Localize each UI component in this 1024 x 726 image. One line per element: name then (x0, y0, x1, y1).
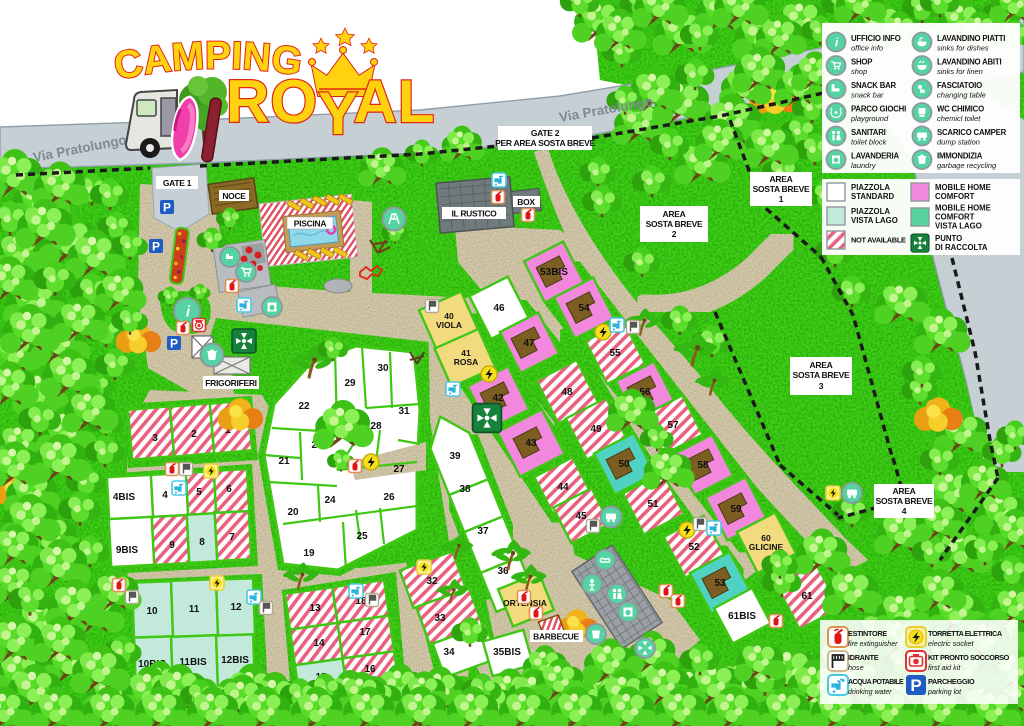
svg-text:59: 59 (730, 504, 742, 515)
svg-text:WC CHIMICO: WC CHIMICO (937, 105, 984, 114)
svg-text:30: 30 (377, 363, 389, 374)
svg-text:5: 5 (196, 487, 202, 498)
svg-text:47: 47 (523, 338, 535, 349)
svg-text:VISTA LAGO: VISTA LAGO (935, 222, 982, 231)
svg-text:parking lot: parking lot (927, 687, 962, 696)
svg-text:MOBILE HOME: MOBILE HOME (935, 183, 991, 192)
svg-text:54: 54 (578, 303, 590, 314)
svg-text:42: 42 (492, 393, 504, 404)
svg-text:4BIS: 4BIS (113, 492, 136, 503)
svg-text:COMFORT: COMFORT (935, 192, 975, 201)
svg-text:4: 4 (162, 490, 168, 501)
svg-text:2: 2 (672, 229, 677, 239)
svg-text:3: 3 (152, 433, 158, 444)
svg-text:GATE 2: GATE 2 (531, 128, 560, 138)
svg-text:SANITARI: SANITARI (851, 128, 886, 137)
svg-text:VIOLA: VIOLA (436, 320, 462, 330)
svg-text:fire extinguisher: fire extinguisher (848, 641, 898, 648)
svg-text:61: 61 (801, 591, 813, 602)
svg-text:SOSTA BREVE: SOSTA BREVE (793, 370, 850, 380)
svg-text:ESTINTORE: ESTINTORE (848, 629, 887, 638)
svg-text:PER AREA SOSTA BREVE: PER AREA SOSTA BREVE (495, 138, 595, 148)
svg-text:PARCHEGGIO: PARCHEGGIO (928, 677, 975, 686)
svg-text:drinking water: drinking water (848, 689, 892, 696)
svg-text:50: 50 (618, 459, 630, 470)
svg-text:AREA: AREA (893, 486, 916, 496)
svg-text:2: 2 (191, 429, 197, 440)
svg-text:46: 46 (493, 303, 505, 314)
svg-text:PIAZZOLA: PIAZZOLA (851, 207, 890, 216)
svg-text:BARBECUE: BARBECUE (533, 632, 579, 642)
svg-text:9: 9 (169, 540, 175, 551)
svg-text:27: 27 (393, 464, 405, 475)
svg-text:PISCINA: PISCINA (294, 219, 327, 229)
svg-text:COMFORT: COMFORT (935, 213, 975, 222)
svg-text:VISTA LAGO: VISTA LAGO (851, 216, 898, 225)
svg-text:22: 22 (298, 401, 310, 412)
svg-text:12BIS: 12BIS (221, 655, 249, 666)
svg-text:49: 49 (590, 424, 602, 435)
svg-text:sinks for linen: sinks for linen (937, 67, 983, 76)
svg-text:37: 37 (477, 526, 489, 537)
svg-text:21: 21 (278, 456, 290, 467)
svg-text:AREA: AREA (770, 174, 793, 184)
svg-text:19: 19 (303, 548, 315, 559)
svg-text:SOSTA BREVE: SOSTA BREVE (753, 184, 810, 194)
svg-text:KIT PRONTO SOCCORSO: KIT PRONTO SOCCORSO (928, 653, 1010, 662)
svg-text:43: 43 (525, 438, 537, 449)
svg-text:57: 57 (667, 420, 679, 431)
svg-text:chemicl toilet: chemicl toilet (937, 114, 981, 123)
svg-text:13: 13 (309, 603, 321, 614)
svg-text:53: 53 (714, 578, 726, 589)
svg-text:31: 31 (398, 406, 410, 417)
svg-text:14: 14 (313, 638, 325, 649)
svg-text:TORRETTA ELETTRICA: TORRETTA ELETTRICA (928, 629, 1003, 638)
svg-text:playground: playground (850, 114, 889, 123)
svg-text:51: 51 (647, 499, 659, 510)
svg-text:34: 34 (443, 647, 455, 658)
svg-text:24: 24 (324, 495, 336, 506)
svg-text:SOSTA BREVE: SOSTA BREVE (646, 219, 703, 229)
svg-text:PARCO GIOCHI: PARCO GIOCHI (851, 105, 906, 114)
svg-text:38: 38 (459, 484, 471, 495)
svg-text:55: 55 (609, 348, 621, 359)
svg-text:44: 44 (557, 482, 569, 493)
svg-text:35BIS: 35BIS (493, 647, 521, 658)
svg-text:SOSTA BREVE: SOSTA BREVE (876, 496, 933, 506)
svg-text:LAVANDINO ABITI: LAVANDINO ABITI (937, 58, 1001, 67)
svg-text:11: 11 (189, 604, 200, 615)
svg-text:SHOP: SHOP (851, 58, 872, 67)
svg-text:DI RACCOLTA: DI RACCOLTA (935, 243, 988, 252)
svg-text:3: 3 (819, 381, 824, 391)
svg-text:12: 12 (230, 602, 242, 613)
svg-text:32: 32 (426, 576, 438, 587)
svg-text:10: 10 (146, 606, 158, 617)
svg-text:61BIS: 61BIS (728, 611, 756, 622)
svg-text:electric socket: electric socket (928, 639, 975, 648)
svg-text:P: P (910, 676, 921, 695)
svg-text:LAVANDERIA: LAVANDERIA (851, 152, 900, 161)
svg-text:office info: office info (851, 44, 883, 53)
svg-text:changing table: changing table (937, 91, 986, 100)
svg-text:MOBILE HOME: MOBILE HOME (935, 204, 991, 213)
svg-text:PUNTO: PUNTO (935, 234, 962, 243)
svg-text:STANDARD: STANDARD (851, 192, 895, 201)
svg-text:48: 48 (561, 387, 573, 398)
svg-text:sinks for dishes: sinks for dishes (937, 44, 989, 53)
svg-text:7: 7 (229, 532, 235, 543)
svg-text:20: 20 (287, 507, 299, 518)
svg-text:garbage recycling: garbage recycling (937, 161, 997, 170)
svg-text:UFFICIO INFO: UFFICIO INFO (851, 34, 901, 43)
svg-text:NOT AVAILABLE: NOT AVAILABLE (851, 236, 906, 245)
svg-text:ACQUA POTABILE: ACQUA POTABILE (848, 679, 904, 686)
svg-text:29: 29 (344, 378, 356, 389)
svg-text:39: 39 (449, 451, 461, 462)
svg-text:25: 25 (356, 531, 368, 542)
svg-text:dump station: dump station (937, 138, 980, 147)
svg-text:IMMONDIZIA: IMMONDIZIA (937, 152, 983, 161)
svg-text:FRIGORIFERI: FRIGORIFERI (205, 378, 256, 388)
svg-text:shop: shop (851, 67, 867, 76)
svg-text:33: 33 (434, 613, 446, 624)
svg-text:17: 17 (359, 627, 371, 638)
svg-text:4: 4 (902, 506, 907, 516)
svg-text:laundry: laundry (851, 161, 877, 170)
svg-text:AREA: AREA (663, 209, 686, 219)
svg-text:LAVANDINO PIATTI: LAVANDINO PIATTI (937, 34, 1005, 43)
svg-text:first aid kit: first aid kit (928, 663, 961, 672)
svg-text:toilet block: toilet block (851, 138, 888, 147)
svg-text:IDRANTE: IDRANTE (848, 653, 879, 662)
svg-text:9BIS: 9BIS (116, 545, 139, 556)
svg-text:45: 45 (575, 511, 587, 522)
svg-text:52: 52 (688, 542, 700, 553)
svg-text:AREA: AREA (810, 360, 833, 370)
svg-text:58: 58 (697, 460, 709, 471)
svg-text:6: 6 (226, 484, 232, 495)
svg-text:hose: hose (848, 663, 864, 672)
svg-text:SCARICO CAMPER: SCARICO CAMPER (937, 128, 1007, 137)
svg-text:GATE 1: GATE 1 (163, 178, 192, 188)
svg-text:PIAZZOLA: PIAZZOLA (851, 183, 890, 192)
svg-text:BOX: BOX (517, 197, 535, 207)
svg-text:snack bar: snack bar (851, 91, 884, 100)
svg-text:FASCIATOIO: FASCIATOIO (937, 81, 982, 90)
svg-text:IL RUSTICO: IL RUSTICO (451, 209, 497, 219)
svg-text:8: 8 (199, 537, 205, 548)
svg-text:SNACK BAR: SNACK BAR (851, 81, 897, 90)
svg-text:1: 1 (779, 194, 784, 204)
svg-text:ROSA: ROSA (454, 357, 479, 367)
svg-text:NOCE: NOCE (222, 191, 246, 201)
svg-text:26: 26 (383, 492, 395, 503)
svg-text:53BIS: 53BIS (540, 267, 568, 278)
